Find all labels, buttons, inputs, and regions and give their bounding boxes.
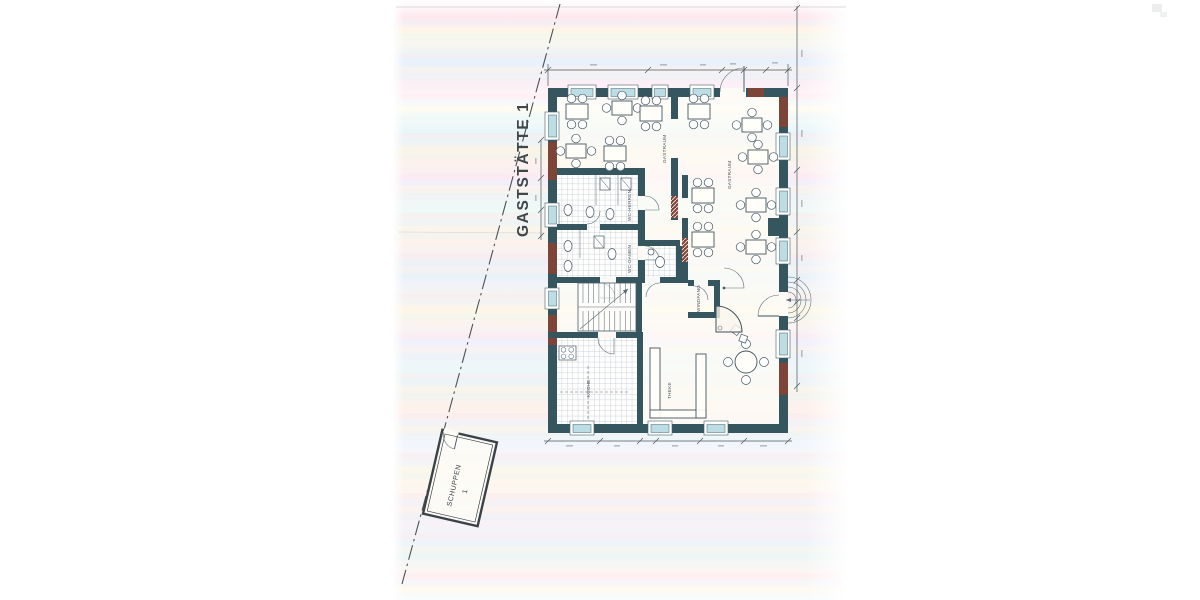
plan-title: GASTSTÄTTE 1 [515,102,532,237]
staircase [578,283,636,331]
label-gastraum-left: GASTRAUM [662,135,667,163]
label-wc-damen: WC-DAMEN [627,245,632,273]
floor-plan-drawing: GASTSTÄTTE 1 [0,0,1200,600]
main-building: GASTRAUM GASTRAUM WC-HERREN WC-DAMEN WIN… [545,66,811,435]
label-wc-herren: WC-HERREN [627,190,632,221]
top-entrance-door [720,66,746,97]
label-windfang: WINDFANG [696,285,701,312]
scanned-floor-plan-page: GASTSTÄTTE 1 [0,0,1200,600]
label-theke: THEKE [667,382,672,399]
label-kueche: KÜCHE [585,379,591,397]
label-gastraum-right: GASTRAUM [727,161,732,189]
shed-building: SCHUPPEN 1 [423,428,497,526]
